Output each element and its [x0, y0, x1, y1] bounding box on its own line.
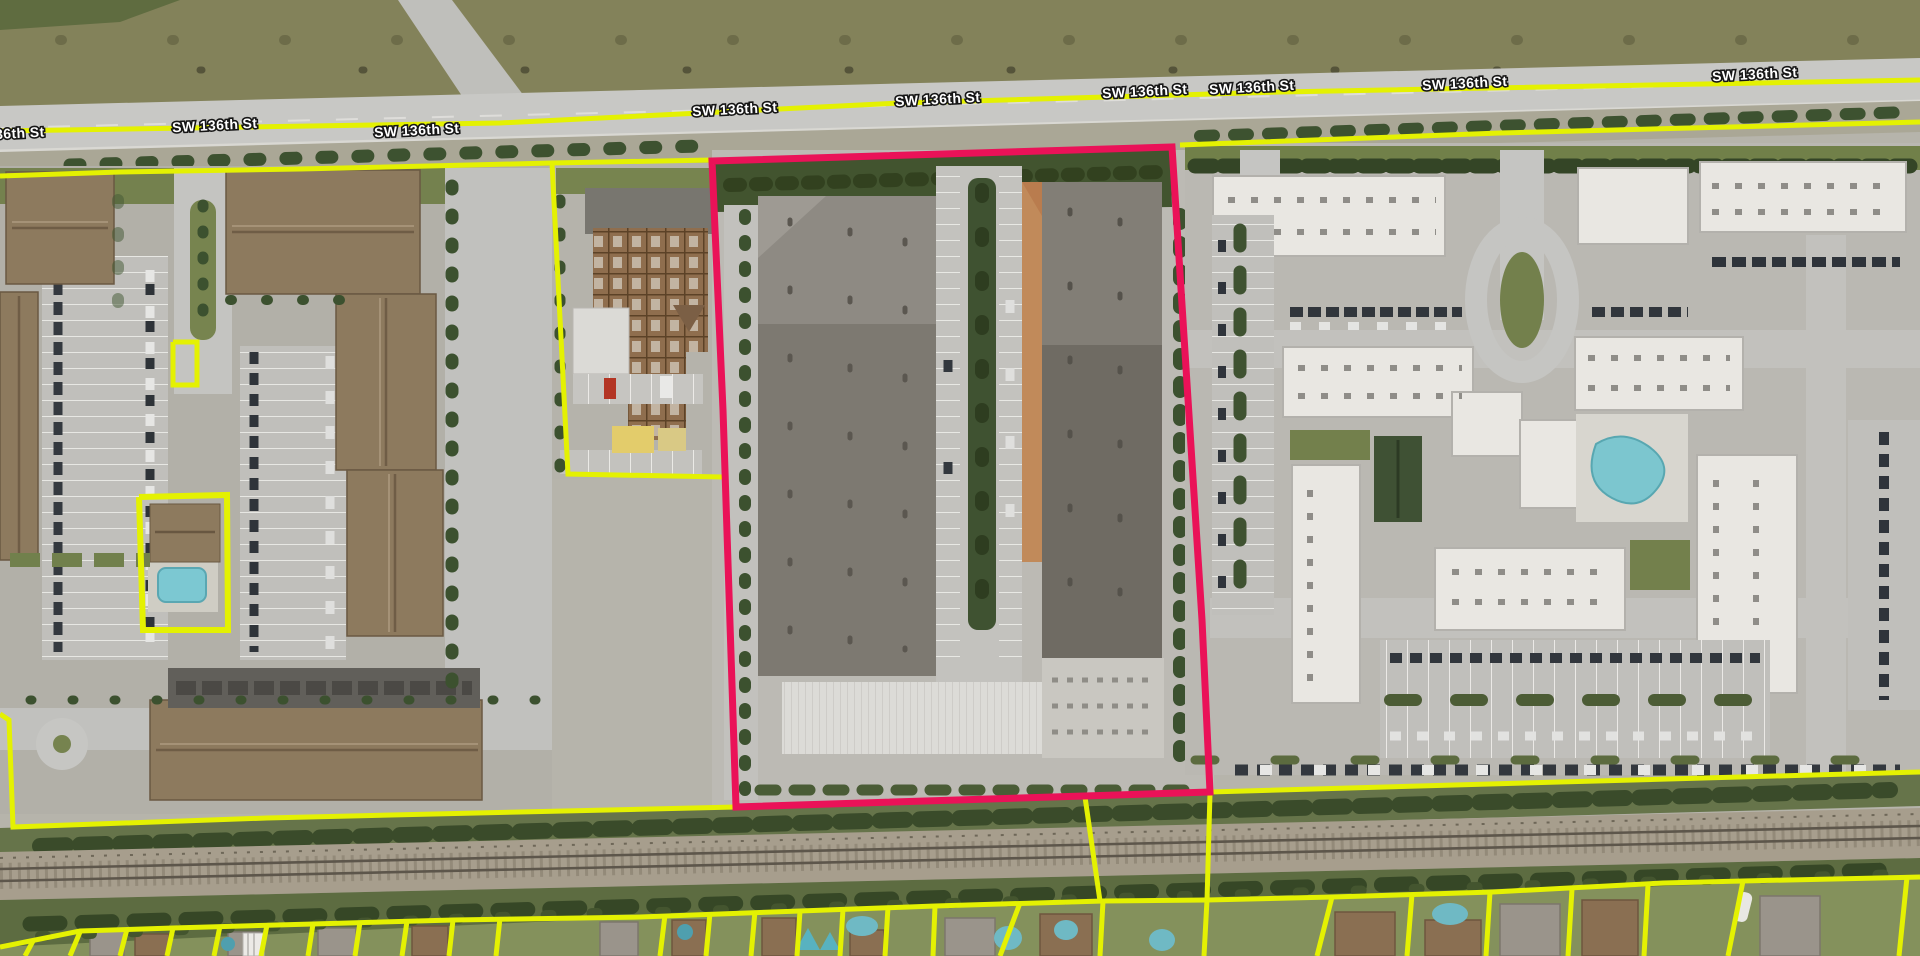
apartment-complex-east [1185, 143, 1920, 775]
lot-divider-line [797, 911, 800, 956]
townhome-complex-west [0, 166, 552, 880]
street-name-label: 136th St [0, 124, 45, 143]
lot-divider-line [1204, 900, 1207, 956]
aerial-parcel-map[interactable]: 136th StSW 136th StSW 136th StSW 136th S… [0, 0, 1920, 956]
parcel-boundary-corridor-cross-line-east [1207, 793, 1210, 901]
lot-divider-line [840, 909, 843, 956]
map-canvas[interactable]: 136th StSW 136th StSW 136th StSW 136th S… [0, 0, 1920, 956]
lot-divider-line [885, 907, 888, 956]
lot-divider-line [933, 906, 935, 956]
warehouse-parcel [712, 149, 1214, 810]
construction-parcel [552, 163, 723, 479]
lot-divider-line [1100, 901, 1103, 956]
